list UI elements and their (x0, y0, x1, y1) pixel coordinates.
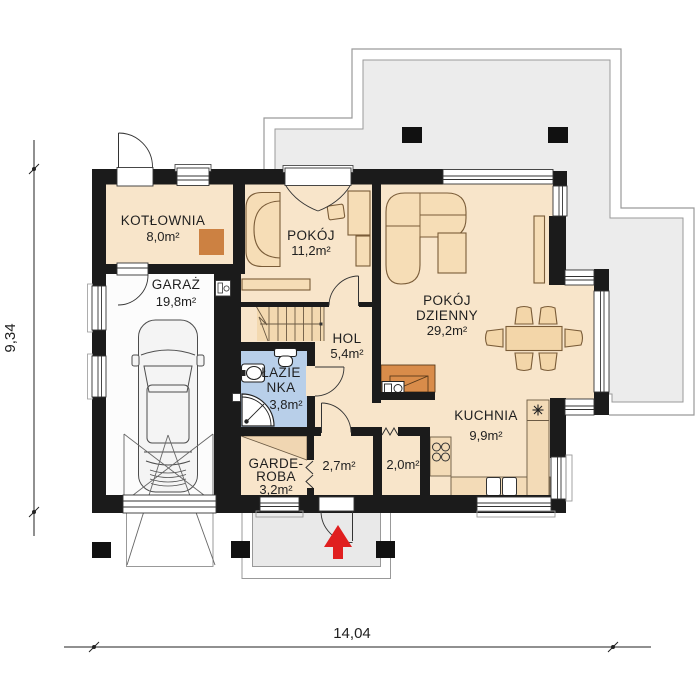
svg-text:2,7m²: 2,7m² (322, 458, 356, 473)
svg-text:KUCHNIA: KUCHNIA (454, 408, 518, 423)
svg-text:POKÓJ: POKÓJ (423, 293, 471, 308)
svg-text:19,8m²: 19,8m² (156, 294, 197, 309)
svg-text:3,2m²: 3,2m² (259, 482, 293, 497)
svg-text:2,0m²: 2,0m² (386, 457, 420, 472)
svg-text:3,8m²: 3,8m² (269, 397, 303, 412)
svg-text:POKÓJ: POKÓJ (287, 228, 335, 243)
svg-text:GARAŻ: GARAŻ (152, 277, 201, 292)
svg-text:ŁAZIE: ŁAZIE (261, 365, 301, 380)
svg-text:11,2m²: 11,2m² (291, 243, 331, 258)
svg-text:NKA: NKA (267, 380, 296, 395)
svg-text:14,04: 14,04 (333, 625, 371, 642)
svg-text:9,9m²: 9,9m² (469, 428, 503, 443)
svg-text:9,34: 9,34 (2, 323, 19, 352)
svg-text:HOL: HOL (333, 331, 362, 346)
svg-text:5,4m²: 5,4m² (330, 346, 364, 361)
svg-text:8,0m²: 8,0m² (146, 229, 180, 244)
svg-text:DZIENNY: DZIENNY (416, 308, 478, 323)
svg-text:29,2m²: 29,2m² (427, 323, 468, 338)
svg-text:KOTŁOWNIA: KOTŁOWNIA (121, 213, 206, 228)
